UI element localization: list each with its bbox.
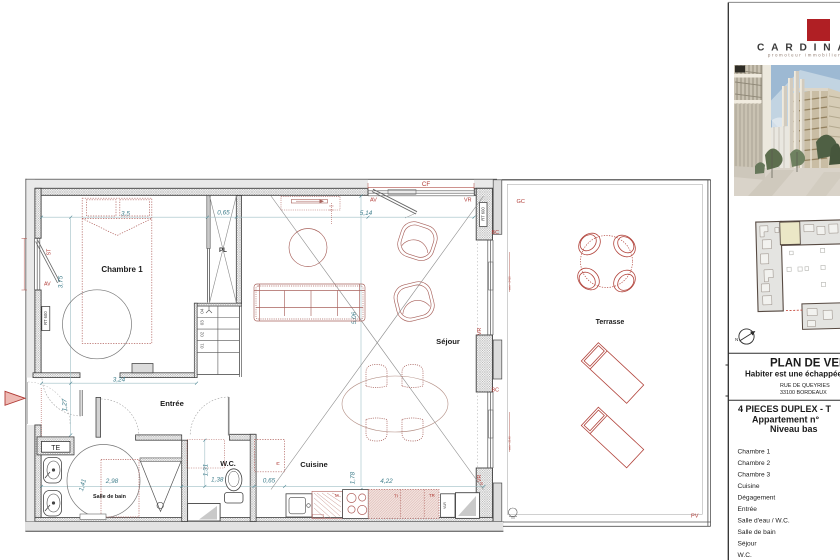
svg-text:AV: AV [370,198,377,204]
svg-text:Séjour: Séjour [738,541,758,548]
svg-text:PLAN DE VENTE: PLAN DE VENTE [770,358,840,370]
svg-text:W.C.: W.C. [220,459,236,468]
svg-text:AV: AV [44,282,51,288]
svg-text:Cuisine: Cuisine [738,483,760,490]
svg-text:BC: BC [492,388,500,394]
svg-text:Terrasse: Terrasse [596,319,625,326]
svg-text:RT 600: RT 600 [43,311,48,325]
svg-text:Salle de bain: Salle de bain [738,529,776,536]
svg-text:0,65: 0,65 [217,210,230,217]
svg-text:04: 04 [200,308,205,314]
svg-text:wxh - 2140: wxh - 2140 [508,436,512,450]
svg-text:1,27: 1,27 [62,398,69,411]
svg-text:TE: TE [51,445,60,452]
svg-text:3,75: 3,75 [58,275,65,288]
svg-text:CF: CF [422,181,430,188]
svg-text:4,22: 4,22 [380,478,393,485]
svg-text:3,5: 3,5 [121,211,130,218]
svg-text:W.C.: W.C. [738,552,752,559]
svg-text:02: 02 [200,331,205,337]
svg-text:GC: GC [517,199,525,205]
svg-text:Salle d'eau / W.C.: Salle d'eau / W.C. [738,518,790,525]
svg-text:Appartement n°: Appartement n° [752,415,820,425]
svg-text:03: 03 [200,320,205,326]
svg-text:1,38: 1,38 [211,477,224,484]
svg-text:RUE DE QUEYRIES: RUE DE QUEYRIES [780,383,830,389]
svg-text:S: S [480,481,483,486]
svg-text:ST: ST [47,248,53,255]
svg-text:Entrée: Entrée [738,506,758,513]
svg-text:1,78: 1,78 [350,471,357,484]
svg-text:PL: PL [219,247,227,254]
svg-text:VR: VR [464,198,472,204]
svg-text:BC: BC [492,230,500,236]
svg-text:Chambre 1: Chambre 1 [101,265,143,274]
svg-text:Dégagement: Dégagement [738,495,776,502]
svg-text:M: M [335,493,339,498]
svg-text:Cuisine: Cuisine [300,460,327,469]
svg-text:PV: PV [691,514,699,520]
svg-text:N: N [735,337,738,342]
svg-text:TR: TR [429,493,435,498]
svg-text:Entrée: Entrée [160,399,184,408]
svg-text:5,14: 5,14 [360,210,373,217]
svg-text:wxh - 2415: wxh - 2415 [508,276,512,290]
svg-text:RT 600: RT 600 [481,207,486,221]
svg-text:4 PIECES DUPLEX - T: 4 PIECES DUPLEX - T [738,404,832,414]
svg-text:0,65: 0,65 [263,478,276,485]
svg-text:Chambre 3: Chambre 3 [738,472,771,479]
svg-text:Chambre 1: Chambre 1 [738,449,771,456]
svg-text:01: 01 [200,343,205,349]
svg-text:33100 BORDEAUX: 33100 BORDEAUX [780,390,827,396]
svg-text:VR: VR [477,328,483,335]
svg-text:Salle de bain: Salle de bain [93,494,126,500]
svg-text:1,31: 1,31 [203,463,210,476]
svg-text:5,06: 5,06 [351,311,358,324]
svg-text:VLR: VLR [443,502,447,509]
svg-text:Niveau bas: Niveau bas [770,424,818,434]
svg-text:TI: TI [394,494,398,499]
svg-text:Habiter est une échappée: Habiter est une échappée [745,370,840,379]
svg-text:Séjour: Séjour [436,337,460,346]
svg-text:promoteur immobilier: promoteur immobilier [768,53,840,58]
svg-text:Chambre 2: Chambre 2 [738,460,771,467]
svg-text:2,98: 2,98 [105,478,119,485]
svg-text:3,24: 3,24 [113,377,126,384]
